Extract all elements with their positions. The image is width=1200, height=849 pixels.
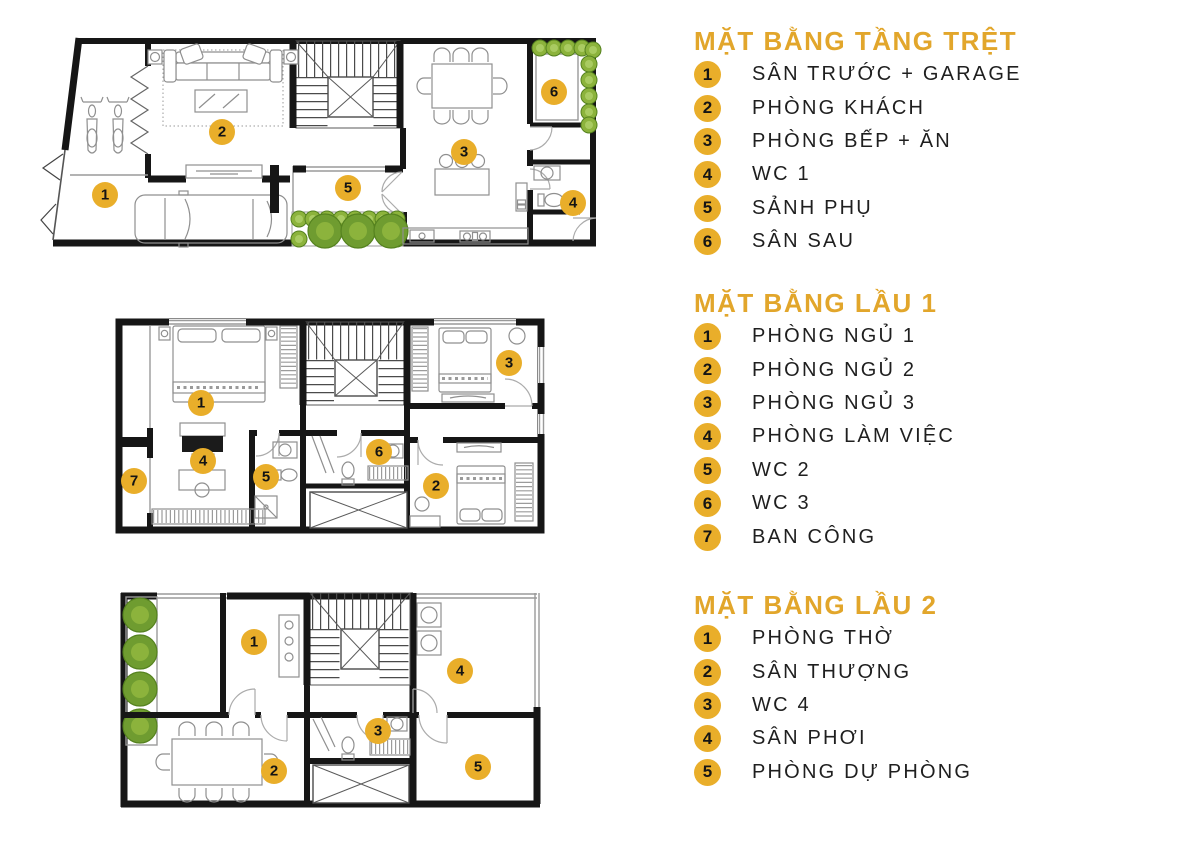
balcony-wall-stub xyxy=(118,437,148,447)
staircase xyxy=(303,322,407,405)
room-badge-6: 6 xyxy=(541,79,567,105)
legend-item-label: SÂN THƯỢNG xyxy=(752,661,911,684)
svg-text:4: 4 xyxy=(569,195,578,212)
sink xyxy=(391,718,403,730)
legend-item-number: 6 xyxy=(694,490,721,517)
toilet xyxy=(342,737,354,753)
wc1-fixtures xyxy=(534,166,563,207)
room-badge-3: 3 xyxy=(451,139,477,165)
planter xyxy=(291,211,408,248)
room-badge-3: 3 xyxy=(496,350,522,376)
shelf xyxy=(457,443,501,452)
car xyxy=(135,191,287,247)
svg-text:4: 4 xyxy=(456,663,465,680)
room-badge-2: 2 xyxy=(209,119,235,145)
stool xyxy=(509,328,525,344)
svg-text:3: 3 xyxy=(505,355,513,372)
staircase xyxy=(293,41,400,128)
legend-item-number: 7 xyxy=(694,524,721,551)
floor-1-plan: 1 2 3 4 5 6 7 xyxy=(115,318,545,534)
legend-title: MẶT BẰNG LẦU 1 xyxy=(694,288,1200,318)
legend-item: 2 PHÒNG NGỦ 2 xyxy=(694,353,1200,386)
legend-item-number: 2 xyxy=(694,95,721,122)
void-x xyxy=(313,765,409,803)
shower-screen xyxy=(312,436,334,473)
terrace-trees xyxy=(123,597,157,745)
legend-item-number: 3 xyxy=(694,390,721,417)
legend-item: 6 SÂN SAU xyxy=(694,225,1200,258)
floor-2-plan: 1 2 3 4 5 xyxy=(117,589,547,815)
wardrobe xyxy=(515,463,533,521)
room-badge-3: 3 xyxy=(365,718,391,744)
door-arc xyxy=(337,433,361,457)
room-badge-5: 5 xyxy=(335,175,361,201)
legend-item: 5 PHÒNG DỰ PHÒNG xyxy=(694,756,1200,789)
door-arc xyxy=(256,433,279,456)
door-arc xyxy=(261,715,287,741)
legend-item-number: 1 xyxy=(694,625,721,652)
wc4-fixtures xyxy=(313,715,410,760)
legend-item-number: 4 xyxy=(694,725,721,752)
staircase xyxy=(307,593,410,685)
legend-item: 4 PHÒNG LÀM VIỆC xyxy=(694,420,1200,453)
legend-ground-floor: MẶT BẰNG TẦNG TRỆT 1 SÂN TRƯỚC + GARAGE … xyxy=(694,26,1200,258)
folding-door xyxy=(131,66,148,154)
legend-item-label: SÂN SAU xyxy=(752,230,855,253)
room-badge-4: 4 xyxy=(190,448,216,474)
svg-text:2: 2 xyxy=(270,763,278,780)
toilet xyxy=(342,462,354,478)
room-badge-1: 1 xyxy=(188,390,214,416)
legend-item-label: PHÒNG THỜ xyxy=(752,627,894,650)
sofa-set xyxy=(148,43,298,126)
legend-item-label: WC 1 xyxy=(752,163,811,186)
legend-title: MẶT BẰNG TẦNG TRỆT xyxy=(694,26,1200,56)
dining-table xyxy=(417,48,507,124)
svg-text:3: 3 xyxy=(374,723,382,740)
legend-item: 2 SÂN THƯỢNG xyxy=(694,655,1200,688)
svg-text:5: 5 xyxy=(344,180,352,197)
legend-item-label: WC 3 xyxy=(752,492,811,515)
legend-item-number: 5 xyxy=(694,457,721,484)
room-badge-2: 2 xyxy=(423,473,449,499)
door-arc xyxy=(505,379,532,406)
legend-item: 2 PHÒNG KHÁCH xyxy=(694,91,1200,124)
wardrobe xyxy=(412,327,428,391)
legend-item-label: PHÒNG DỰ PHÒNG xyxy=(752,761,972,784)
door-arc xyxy=(229,689,255,715)
legend-item: 3 PHÒNG BẾP + ĂN xyxy=(694,125,1200,158)
svg-text:5: 5 xyxy=(474,759,482,776)
desk xyxy=(179,470,225,497)
legend-item: 1 PHÒNG THỜ xyxy=(694,622,1200,655)
room-badge-4: 4 xyxy=(447,658,473,684)
wc3-fixtures xyxy=(312,433,408,485)
svg-text:6: 6 xyxy=(375,444,383,461)
legend-item-number: 1 xyxy=(694,323,721,350)
wardrobe xyxy=(280,326,297,388)
legend-item: 3 PHÒNG NGỦ 3 xyxy=(694,387,1200,420)
bed xyxy=(439,328,491,392)
legend-item-number: 1 xyxy=(694,61,721,88)
bed xyxy=(457,466,505,524)
svg-text:5: 5 xyxy=(262,469,270,486)
legend-item-label: PHÒNG KHÁCH xyxy=(752,97,925,120)
room-badge-1: 1 xyxy=(241,629,267,655)
ground-floor-plan: 1 2 3 4 5 6 xyxy=(40,28,610,258)
svg-text:2: 2 xyxy=(432,478,440,495)
door-arc xyxy=(418,440,443,465)
legend-item-label: PHÒNG NGỦ 3 xyxy=(752,392,916,415)
legend-item-label: PHÒNG LÀM VIỆC xyxy=(752,425,955,448)
door-arc xyxy=(382,172,402,192)
legend-item-label: SÂN PHƠI xyxy=(752,727,867,750)
room-badge-6: 6 xyxy=(366,439,392,465)
legend-item-label: PHÒNG NGỦ 2 xyxy=(752,359,916,382)
room-badge-2: 2 xyxy=(261,758,287,784)
room-badge-7: 7 xyxy=(121,468,147,494)
coffee-table xyxy=(195,90,247,112)
scooter xyxy=(81,97,103,153)
toilet xyxy=(281,469,297,481)
legend-item-number: 3 xyxy=(694,692,721,719)
wardrobe xyxy=(152,509,265,524)
kitchen-sink xyxy=(419,233,425,239)
legend-item-number: 2 xyxy=(694,357,721,384)
legend-item-number: 2 xyxy=(694,659,721,686)
svg-text:7: 7 xyxy=(130,473,138,490)
dresser xyxy=(442,394,494,402)
legend-title: MẶT BẰNG LẦU 2 xyxy=(694,590,1200,620)
room-badge-1: 1 xyxy=(92,182,118,208)
legend-item: 7 BAN CÔNG xyxy=(694,520,1200,553)
svg-text:1: 1 xyxy=(250,634,258,651)
legend-floor-2: MẶT BẰNG LẦU 2 1 PHÒNG THỜ 2 SÂN THƯỢNG … xyxy=(694,590,1200,789)
toilet-tank xyxy=(538,194,544,206)
sink xyxy=(279,444,291,456)
mirror xyxy=(179,191,188,195)
terrace-dining-table xyxy=(156,722,278,802)
shower-screen xyxy=(313,717,335,751)
legend-item: 6 WC 3 xyxy=(694,487,1200,520)
legend-item-number: 5 xyxy=(694,759,721,786)
legend-item: 1 SÂN TRƯỚC + GARAGE xyxy=(694,58,1200,91)
legend-item: 1 PHÒNG NGỦ 1 xyxy=(694,320,1200,353)
door-arc xyxy=(413,689,437,713)
scooter xyxy=(107,97,129,153)
legend-item-label: SẢNH PHỤ xyxy=(752,197,873,220)
room-badge-5: 5 xyxy=(465,754,491,780)
tv-console xyxy=(186,165,262,178)
door-arc xyxy=(419,715,447,743)
legend-item: 5 WC 2 xyxy=(694,454,1200,487)
svg-text:6: 6 xyxy=(550,84,558,101)
svg-text:1: 1 xyxy=(101,187,109,204)
legend-item-number: 3 xyxy=(694,128,721,155)
legend-item-label: SÂN TRƯỚC + GARAGE xyxy=(752,63,1022,86)
svg-text:1: 1 xyxy=(197,395,205,412)
legend-item-label: PHÒNG NGỦ 1 xyxy=(752,325,916,348)
stool xyxy=(440,155,453,168)
legend-item-label: BAN CÔNG xyxy=(752,526,876,549)
svg-text:4: 4 xyxy=(199,453,208,470)
void-x xyxy=(310,492,407,528)
legend-item-number: 5 xyxy=(694,195,721,222)
room-badge-5: 5 xyxy=(253,464,279,490)
legend-item: 4 WC 1 xyxy=(694,158,1200,191)
gate-swing-mark xyxy=(43,154,63,180)
legend-item: 4 SÂN PHƠI xyxy=(694,722,1200,755)
legend-item-number: 4 xyxy=(694,161,721,188)
legend-item: 5 SẢNH PHỤ xyxy=(694,192,1200,225)
legend-floor-1: MẶT BẰNG LẦU 1 1 PHÒNG NGỦ 1 2 PHÒNG NGỦ… xyxy=(694,288,1200,554)
svg-text:3: 3 xyxy=(460,144,468,161)
legend-item: 3 WC 4 xyxy=(694,689,1200,722)
back-hall-doors xyxy=(530,127,596,241)
legend-item-label: WC 2 xyxy=(752,459,811,482)
altar xyxy=(279,615,299,677)
legend-item-label: PHÒNG BẾP + ĂN xyxy=(752,130,952,153)
bed xyxy=(173,326,265,402)
legend-item-number: 6 xyxy=(694,228,721,255)
svg-text:2: 2 xyxy=(218,124,226,141)
washing-machines xyxy=(417,603,441,655)
legend-item-number: 4 xyxy=(694,423,721,450)
bench xyxy=(410,516,440,527)
room-badge-4: 4 xyxy=(560,190,586,216)
stool xyxy=(415,497,429,511)
legend-item-label: WC 4 xyxy=(752,694,811,717)
